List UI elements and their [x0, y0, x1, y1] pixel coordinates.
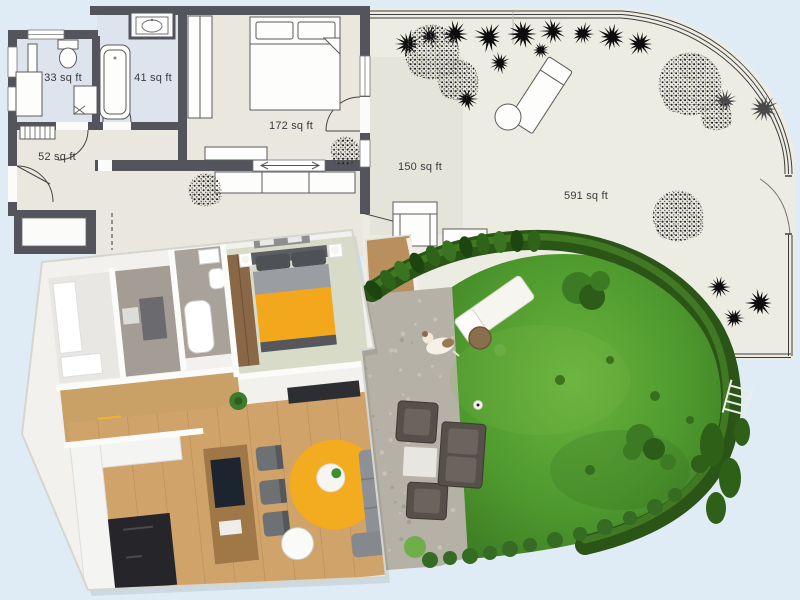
- pebble: [391, 486, 394, 489]
- garden-table-3d: [469, 327, 491, 349]
- pebble: [402, 393, 404, 395]
- render-3d: [0, 0, 800, 600]
- pebble: [368, 375, 371, 378]
- sink-3d: [198, 248, 219, 264]
- pebble: [417, 373, 421, 377]
- pebble: [399, 537, 403, 541]
- area-label-bathroom-main: 41 sq ft: [134, 72, 172, 84]
- pebble: [389, 348, 393, 352]
- pebble: [399, 369, 402, 372]
- pebble: [372, 415, 375, 418]
- pebble: [394, 501, 397, 504]
- pebble: [389, 438, 392, 441]
- hedge-cone: [528, 230, 541, 252]
- pebble: [399, 512, 401, 514]
- pebble: [380, 450, 384, 454]
- bathtub-3d: [184, 300, 215, 354]
- area-label-bathroom-small: 33 sq ft: [44, 72, 82, 84]
- apartment-interior-3d: [5, 225, 412, 600]
- outdoor-sofa: [438, 422, 486, 489]
- pebble: [411, 342, 413, 344]
- bathroom-cabinet-3d: [139, 296, 167, 340]
- pebble: [407, 520, 411, 524]
- pebble: [400, 338, 404, 342]
- area-label-patio: 150 sq ft: [398, 161, 442, 173]
- pebble: [382, 471, 387, 476]
- pebble: [401, 504, 405, 508]
- area-label-garden: 591 sq ft: [564, 190, 608, 202]
- pebble: [394, 349, 398, 353]
- outdoor-coffee-table: [402, 446, 438, 478]
- pebble: [418, 299, 421, 302]
- pebble: [437, 545, 442, 550]
- floorplan-composite-image: 33 sq ft 41 sq ft 52 sq ft 172 sq ft 150…: [0, 0, 800, 600]
- pebble: [373, 303, 375, 305]
- pebble: [431, 365, 434, 368]
- fridge-3d: [108, 513, 177, 591]
- pebble: [401, 332, 406, 337]
- pebble: [433, 317, 437, 321]
- area-label-bedroom: 172 sq ft: [269, 120, 313, 132]
- pebble: [389, 412, 392, 415]
- pebble: [451, 336, 455, 340]
- area-label-hallway: 52 sq ft: [38, 151, 76, 163]
- pebble: [389, 471, 391, 473]
- pebble: [414, 323, 417, 326]
- pebble: [404, 492, 406, 494]
- pebble: [388, 549, 391, 552]
- pebble: [376, 429, 378, 431]
- pebble: [451, 508, 456, 513]
- football-icon: [474, 401, 483, 410]
- pebble: [439, 375, 442, 378]
